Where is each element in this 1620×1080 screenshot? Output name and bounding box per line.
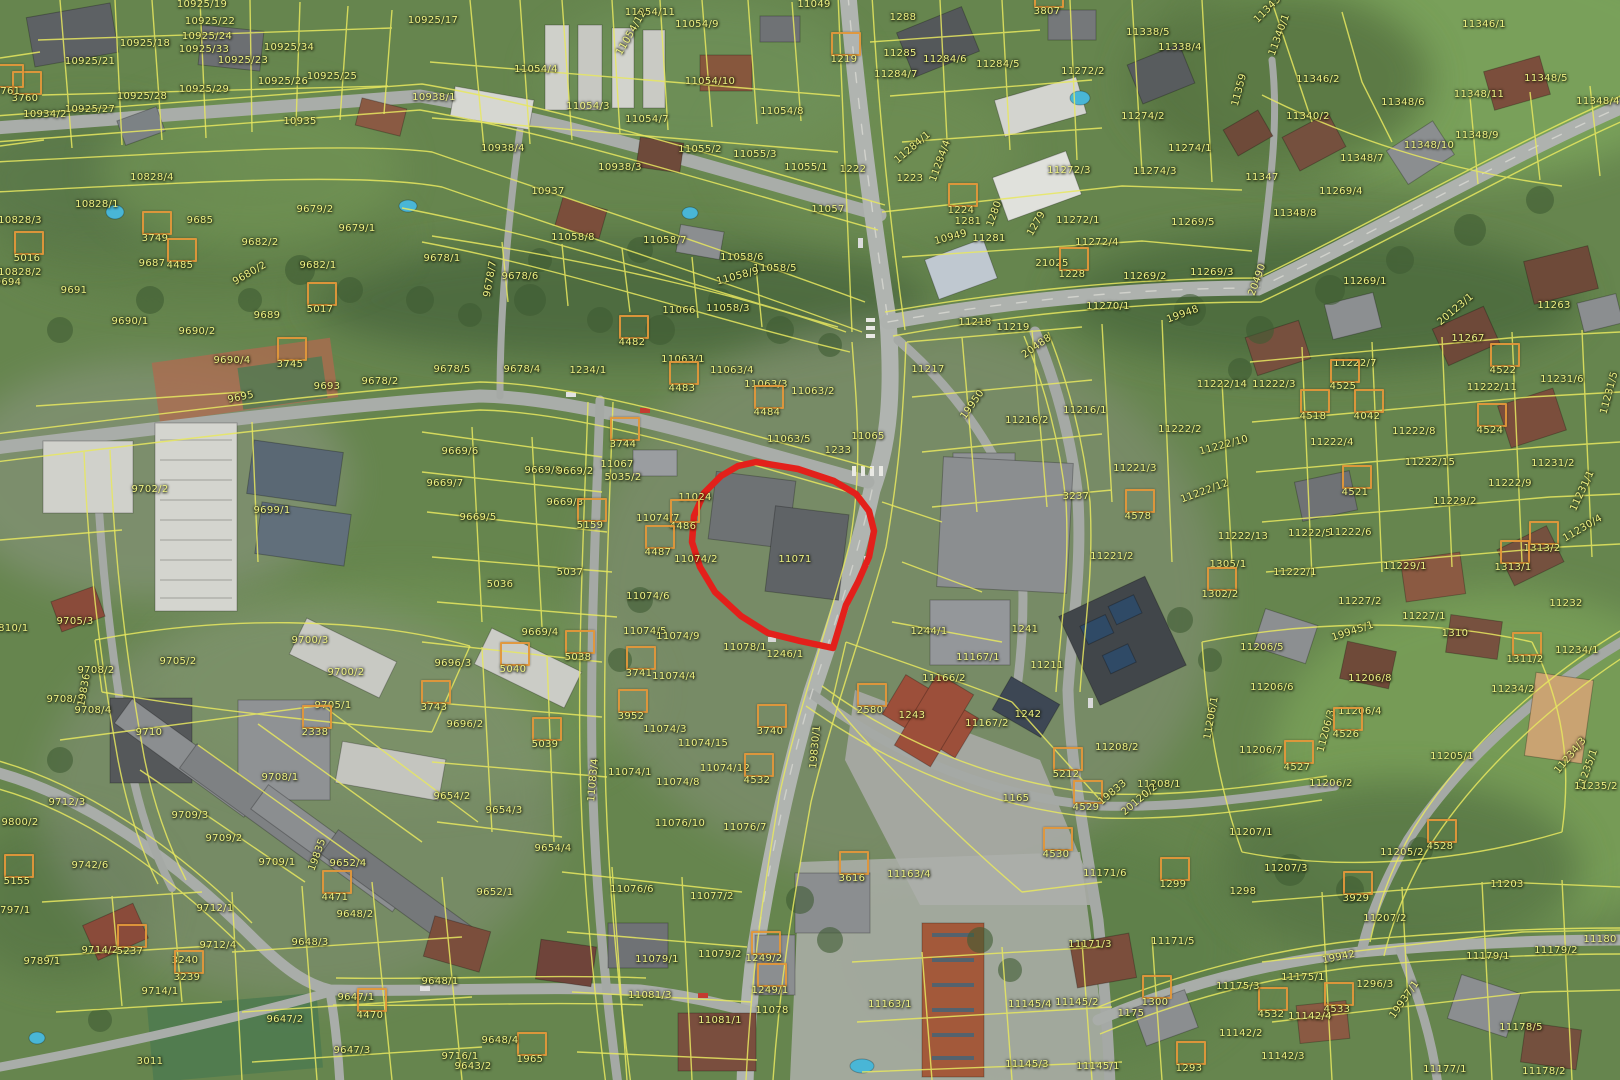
- cadastral-map-view[interactable]: 10925/1910925/2210925/2410925/3310925/18…: [0, 0, 1620, 1080]
- orthophoto-canvas: [0, 0, 1620, 1080]
